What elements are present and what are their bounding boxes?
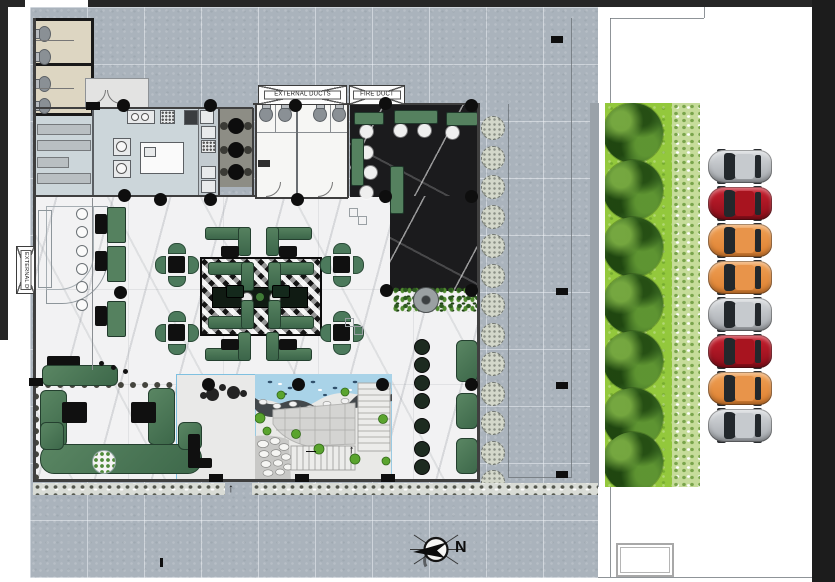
column-dot bbox=[379, 97, 392, 110]
stone-planter bbox=[481, 382, 505, 406]
pendant-lamp bbox=[99, 361, 104, 366]
corridor-table bbox=[414, 339, 430, 355]
booth-table bbox=[279, 339, 297, 350]
bar-stool bbox=[76, 226, 88, 238]
column-dot bbox=[465, 284, 478, 297]
column-dot bbox=[292, 378, 305, 391]
parked-car-orange bbox=[708, 261, 772, 294]
bar-stool bbox=[76, 299, 88, 311]
bar-stool bbox=[76, 281, 88, 293]
cafe-table bbox=[228, 142, 244, 158]
column-dot bbox=[376, 378, 389, 391]
stone-planter bbox=[481, 441, 505, 465]
parked-car-silver bbox=[708, 409, 772, 442]
tree bbox=[605, 103, 663, 163]
toilet-fixture bbox=[259, 107, 273, 122]
wall-marker bbox=[381, 474, 395, 482]
external-ducts-side-label: EXTERNAL DUCTS bbox=[20, 250, 31, 291]
corridor-table bbox=[414, 418, 430, 434]
lounge-bench bbox=[351, 138, 364, 186]
plaza-marker bbox=[556, 288, 568, 295]
restroom-stall-wall bbox=[298, 132, 348, 133]
kitchen-island-sink bbox=[144, 147, 156, 157]
column-dot bbox=[289, 99, 302, 112]
wall-booth-table bbox=[95, 251, 107, 271]
mulch-strip bbox=[252, 483, 598, 495]
top-frame-bar bbox=[88, 0, 812, 7]
column-dot bbox=[204, 193, 217, 206]
cafe-chair bbox=[220, 146, 228, 154]
lounge-sofa bbox=[42, 365, 118, 386]
wall-booth bbox=[107, 246, 126, 282]
car-rear-window bbox=[755, 266, 761, 289]
right-frame-bar bbox=[812, 0, 835, 582]
decor-square bbox=[345, 318, 354, 327]
column-dot bbox=[204, 99, 217, 112]
parked-car-red bbox=[708, 187, 772, 220]
cafe-chair bbox=[244, 146, 252, 154]
lounge-round-table bbox=[364, 166, 377, 179]
column-dot bbox=[291, 193, 304, 206]
wall bbox=[33, 195, 255, 197]
car-roof bbox=[735, 228, 754, 253]
chair bbox=[240, 390, 247, 397]
counter-appliance bbox=[201, 180, 216, 193]
stair-up-arrow: ↑ bbox=[349, 444, 355, 456]
tree bbox=[605, 274, 663, 334]
toilet-partition bbox=[36, 40, 74, 41]
column-dot bbox=[379, 190, 392, 203]
wall-marker bbox=[86, 102, 100, 110]
stone-planter bbox=[481, 146, 505, 170]
site-boundary-line bbox=[610, 18, 704, 19]
parked-car-orange bbox=[708, 372, 772, 405]
dining-set bbox=[320, 243, 362, 285]
cafe-table bbox=[228, 118, 244, 134]
tree bbox=[605, 160, 663, 220]
lounge-table bbox=[62, 402, 87, 423]
booth-seat bbox=[208, 300, 252, 327]
booth-table bbox=[221, 339, 239, 350]
column-dot bbox=[118, 189, 131, 202]
car-roof bbox=[735, 154, 754, 179]
tree bbox=[605, 432, 663, 487]
restroom-stall-wall bbox=[330, 104, 331, 132]
pendant-lamp bbox=[123, 369, 128, 374]
rug-table bbox=[272, 285, 290, 298]
lounge-bench bbox=[394, 110, 438, 124]
rug-table bbox=[226, 285, 244, 298]
car-rear-window bbox=[755, 377, 761, 400]
corridor-table bbox=[414, 459, 430, 475]
lounge-round-table bbox=[394, 124, 407, 137]
cafe-chair bbox=[244, 168, 252, 176]
plaza-marker bbox=[556, 471, 568, 478]
car-rear-window bbox=[755, 155, 761, 178]
car-roof bbox=[735, 339, 754, 364]
wall-marker bbox=[209, 474, 223, 482]
decor-square bbox=[349, 208, 358, 217]
column-dot bbox=[465, 99, 478, 112]
lounge-table bbox=[131, 402, 156, 423]
external-ducts-side-box: EXTERNAL DUCTS bbox=[16, 246, 35, 294]
restroom-mat bbox=[258, 160, 270, 167]
lounge-sofa bbox=[40, 444, 202, 474]
tree bbox=[605, 331, 663, 391]
lounge-round-table bbox=[360, 125, 373, 138]
car-roof bbox=[735, 376, 754, 401]
wall-booth bbox=[107, 301, 126, 337]
kitchen-shelf bbox=[37, 157, 69, 168]
stone-basin bbox=[413, 287, 439, 313]
stove-burner bbox=[116, 141, 127, 152]
flower-pot bbox=[92, 450, 116, 474]
site-plan-canvas: EXTERNAL DUCTS FIRE DUCT EXTERNAL DUCTS bbox=[0, 0, 835, 582]
counter-appliance bbox=[201, 140, 216, 153]
stone-planter bbox=[481, 175, 505, 199]
stone-planter bbox=[481, 352, 505, 376]
restroom-stall-wall bbox=[255, 132, 296, 133]
wall-booth-table bbox=[95, 306, 107, 326]
stone-planter bbox=[481, 116, 505, 140]
stone-planter bbox=[481, 264, 505, 288]
decor-square bbox=[358, 216, 367, 225]
bar-stool bbox=[76, 208, 88, 220]
bar-partition-wall bbox=[92, 198, 93, 370]
plaza-tick bbox=[160, 558, 163, 567]
cafe-chair bbox=[220, 168, 228, 176]
lounge-bench bbox=[354, 112, 384, 125]
decor-square bbox=[354, 326, 363, 335]
column-dot bbox=[117, 99, 130, 112]
kitchen-grill bbox=[160, 110, 175, 124]
toilet-fixture bbox=[38, 76, 51, 92]
lounge-sofa bbox=[40, 422, 64, 450]
car-roof bbox=[735, 302, 754, 327]
burner bbox=[141, 113, 149, 121]
stove-burner bbox=[116, 163, 127, 174]
column-dot bbox=[465, 190, 478, 203]
stone-planter bbox=[481, 205, 505, 229]
car-roof bbox=[735, 265, 754, 290]
lounge-round-table bbox=[446, 126, 459, 139]
dining-set bbox=[155, 243, 197, 285]
wall bbox=[252, 108, 254, 196]
kitchen-fryer bbox=[184, 110, 198, 125]
dining-set bbox=[155, 311, 197, 353]
car-rear-window bbox=[755, 229, 761, 252]
stone-planter bbox=[481, 293, 505, 317]
corridor-table bbox=[414, 441, 430, 457]
water-feature bbox=[255, 374, 392, 481]
plaza-edge-wall bbox=[590, 103, 599, 487]
car-rear-window bbox=[755, 340, 761, 363]
external-ducts-label: EXTERNAL DUCTS bbox=[264, 91, 341, 100]
toilet-fixture bbox=[313, 107, 327, 122]
cafe-chair bbox=[220, 122, 228, 130]
corridor-table bbox=[414, 393, 430, 409]
toilet-partition bbox=[36, 88, 74, 89]
car-roof bbox=[735, 413, 754, 438]
parked-car-silver bbox=[708, 150, 772, 183]
wall-marker bbox=[29, 378, 43, 386]
cafe-chair bbox=[244, 122, 252, 130]
stone-planter bbox=[481, 234, 505, 258]
car-rear-window bbox=[755, 303, 761, 326]
corridor-sofa bbox=[456, 340, 478, 382]
wall bbox=[255, 104, 257, 198]
wall bbox=[218, 108, 220, 196]
car-roof bbox=[735, 191, 754, 216]
plaza-marker bbox=[556, 382, 568, 389]
toilet-fixture bbox=[38, 98, 51, 114]
burner bbox=[131, 113, 139, 121]
counter-appliance bbox=[201, 126, 216, 139]
fire-duct-box: FIRE DUCT bbox=[349, 85, 405, 105]
restroom-wall bbox=[296, 104, 298, 198]
car-rear-window bbox=[755, 414, 761, 437]
bar-stool bbox=[76, 245, 88, 257]
external-ducts-box: EXTERNAL DUCTS bbox=[258, 85, 347, 105]
wall bbox=[33, 107, 253, 109]
fire-duct-label: FIRE DUCT bbox=[353, 91, 401, 100]
toilet-fixture bbox=[38, 49, 51, 65]
plaza-marker bbox=[551, 36, 563, 43]
column-dot bbox=[154, 193, 167, 206]
corridor-table bbox=[414, 357, 430, 373]
lounge-bench bbox=[390, 166, 404, 214]
kitchen-shelf bbox=[37, 173, 91, 184]
counter-appliance bbox=[201, 166, 216, 179]
entrance-arrow: ↑ bbox=[228, 481, 234, 495]
reception-desk bbox=[188, 458, 212, 468]
cafe-table bbox=[228, 164, 244, 180]
stone-planter bbox=[481, 411, 505, 435]
round-table bbox=[227, 386, 240, 399]
lounge-round-table bbox=[360, 186, 373, 199]
wall-marker bbox=[295, 474, 309, 482]
restroom-stall-wall bbox=[275, 104, 276, 132]
column-dot bbox=[465, 378, 478, 391]
column-dot bbox=[114, 286, 127, 299]
site-boundary-line bbox=[598, 577, 812, 578]
chair bbox=[200, 392, 207, 399]
bar-stool bbox=[76, 263, 88, 275]
wall bbox=[33, 479, 480, 482]
hedge-strip bbox=[672, 103, 700, 487]
corridor-table bbox=[414, 375, 430, 391]
wall-booth bbox=[107, 207, 126, 243]
tree bbox=[605, 217, 663, 277]
guard-booth bbox=[616, 543, 674, 577]
kitchen-partition-wall bbox=[92, 108, 94, 196]
booth-table bbox=[279, 246, 297, 257]
pendant-lamp bbox=[111, 365, 116, 370]
stair-dash-mark: — bbox=[306, 446, 316, 457]
mulch-strip bbox=[33, 483, 225, 495]
parked-car-orange bbox=[708, 224, 772, 257]
parked-car-red bbox=[708, 335, 772, 368]
corridor-sofa bbox=[456, 438, 478, 474]
lounge-bench bbox=[446, 112, 478, 126]
north-label: N bbox=[455, 539, 467, 557]
lounge-round-table bbox=[418, 124, 431, 137]
chair bbox=[219, 384, 226, 391]
parked-car-silver bbox=[708, 298, 772, 331]
wall bbox=[347, 104, 349, 198]
column-dot bbox=[380, 284, 393, 297]
kitchen-shelf bbox=[37, 140, 91, 151]
plaza-boundary-line bbox=[571, 18, 572, 477]
rug-center-plant bbox=[256, 293, 264, 301]
car-rear-window bbox=[755, 192, 761, 215]
stone-planter bbox=[481, 323, 505, 347]
column-dot bbox=[202, 378, 215, 391]
kitchen-shelf bbox=[37, 124, 91, 135]
left-frame-bar bbox=[0, 0, 8, 340]
corridor-sofa bbox=[456, 393, 478, 429]
plaza-boundary-line bbox=[508, 104, 509, 477]
kitchen-equipment bbox=[200, 110, 214, 124]
wall-booth-table bbox=[95, 214, 107, 234]
toilet-fixture bbox=[332, 107, 346, 122]
booth-seat bbox=[268, 300, 312, 327]
bar-back-shelf bbox=[38, 210, 52, 288]
booth-table bbox=[221, 246, 239, 257]
